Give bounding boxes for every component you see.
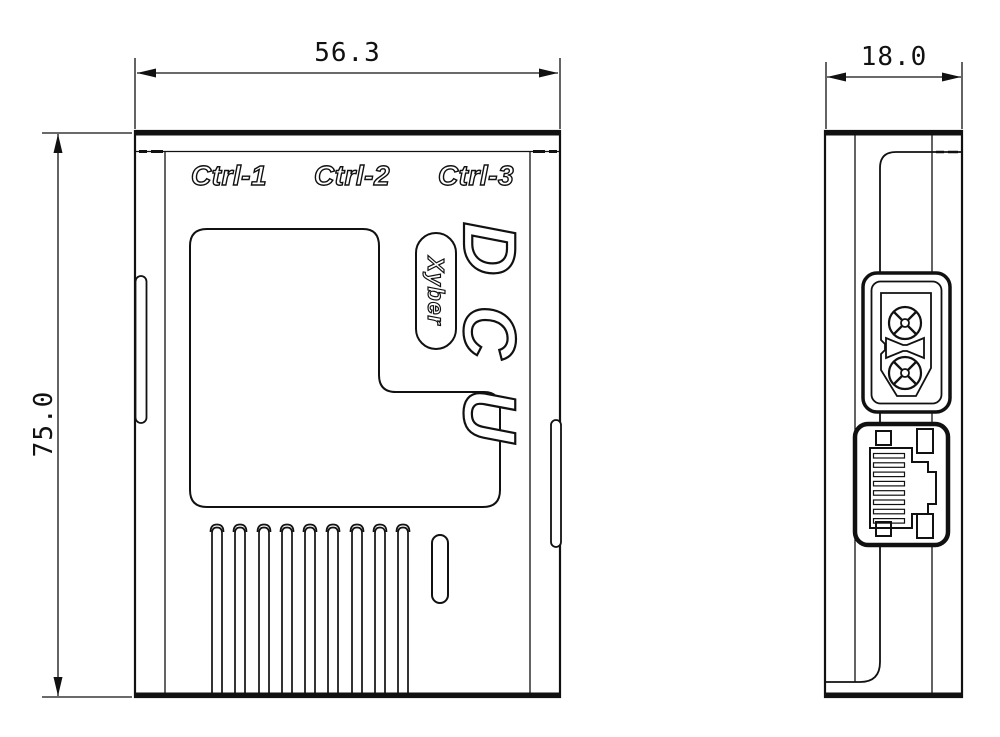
technical-drawing-canvas: 56.3 18.0 75.0 Ctrl-1 Ctrl-2 Ctrl-3 DCU … [0,0,1000,737]
side-latch-right [551,420,561,547]
dimension-height-label: 75.0 [29,354,59,494]
brand-badge-label: Xyber [423,257,450,326]
side-view-outline [825,131,962,697]
dimension-width-label: 56.3 [135,38,560,68]
xt30-power-connector [863,273,950,412]
port-label-ctrl1: Ctrl-1 [179,160,279,192]
dimension-depth-label: 18.0 [826,42,962,72]
width-dimension [135,58,560,129]
port-label-ctrl2: Ctrl-2 [302,160,402,192]
port-label-ctrl3: Ctrl-3 [426,160,526,192]
product-logo: DCU [457,220,519,468]
rj45-ethernet-port [855,424,948,545]
depth-dimension [826,62,962,129]
brand-badge: Xyber [415,232,457,350]
side-latch-left [136,276,147,423]
